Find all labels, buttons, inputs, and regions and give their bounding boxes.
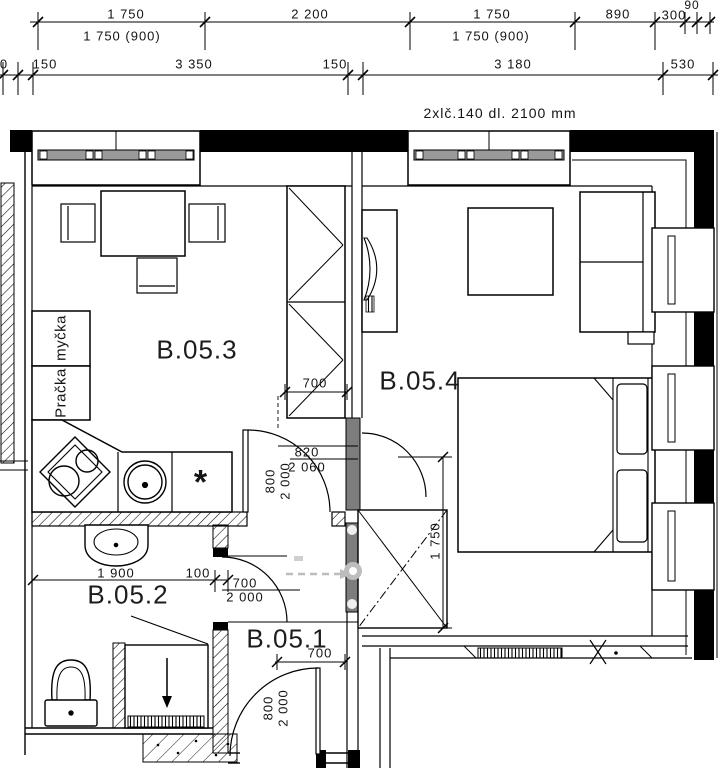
dim-row1-sub2: 1 750 (900) bbox=[452, 29, 530, 44]
room-label-bedroom: B.05.4 bbox=[379, 366, 460, 397]
room-label-kitchen: B.05.3 bbox=[156, 335, 237, 366]
dim-bath-door-h: 2 000 bbox=[226, 590, 264, 605]
dining-table bbox=[101, 191, 185, 256]
sofa bbox=[580, 192, 655, 344]
lintel-note: 2xlč.140 dl. 2100 mm bbox=[423, 105, 576, 121]
dim-bath-gap: 100 bbox=[186, 566, 211, 581]
floor-plan: 1 750 2 200 1 750 890 300 90 1 750 (900)… bbox=[0, 0, 720, 768]
dim-entry-ch: 2 000 bbox=[276, 689, 291, 727]
dim-row1-seg3: 1 750 bbox=[473, 7, 511, 22]
dim-row2-seg5: 530 bbox=[671, 57, 696, 72]
window-kitchen bbox=[32, 131, 200, 185]
shower bbox=[113, 616, 208, 728]
floor-plan-drawing bbox=[0, 0, 720, 768]
dim-entry-w: 700 bbox=[308, 646, 333, 661]
dim-row1-seg1: 1 750 bbox=[107, 7, 145, 22]
dim-wardrobe-width: 700 bbox=[303, 376, 328, 391]
dim-row2-seg0: 0 bbox=[0, 57, 8, 72]
dimension-row-2 bbox=[0, 62, 718, 95]
dim-kitchen-door-ch: 2 000 bbox=[278, 462, 293, 500]
bedroom-door bbox=[362, 433, 452, 497]
dim-kitchen-door-w: 820 bbox=[295, 445, 320, 460]
dim-row2-seg3: 150 bbox=[323, 57, 348, 72]
dim-row1-seg6: 90 bbox=[684, 0, 699, 12]
washbasin bbox=[85, 525, 148, 566]
tv-unit bbox=[362, 210, 397, 332]
room-label-bathroom: B.05.2 bbox=[87, 580, 168, 611]
dim-bath-door-w: 700 bbox=[233, 576, 258, 591]
dim-kitchen-door-cw: 800 bbox=[263, 469, 278, 494]
washing-machine-label: Pračka bbox=[53, 368, 70, 418]
dim-row2-seg1: 150 bbox=[33, 57, 58, 72]
dim-kitchen-door-h: 2 060 bbox=[288, 460, 326, 475]
dim-row1-seg2: 2 200 bbox=[291, 7, 329, 22]
dim-row1-sub1: 1 750 (900) bbox=[83, 29, 161, 44]
dim-bed-zone: 1 750 bbox=[428, 522, 443, 560]
dim-row2-seg2: 3 350 bbox=[175, 57, 213, 72]
dim-entry-cw: 800 bbox=[261, 696, 276, 721]
dim-bath-width: 1 900 bbox=[97, 566, 135, 581]
dim-row1-seg4: 890 bbox=[606, 7, 631, 22]
dishwasher-label: myčka bbox=[53, 315, 70, 361]
window-bedroom bbox=[408, 131, 570, 185]
coffee-table bbox=[468, 208, 553, 295]
star-mark: * bbox=[194, 464, 208, 503]
dim-row2-seg4: 3 180 bbox=[494, 57, 532, 72]
dim-row1-seg5: 300 bbox=[662, 8, 687, 23]
double-bed bbox=[458, 378, 655, 552]
toilet bbox=[45, 660, 97, 726]
balcony-panels bbox=[652, 228, 714, 590]
